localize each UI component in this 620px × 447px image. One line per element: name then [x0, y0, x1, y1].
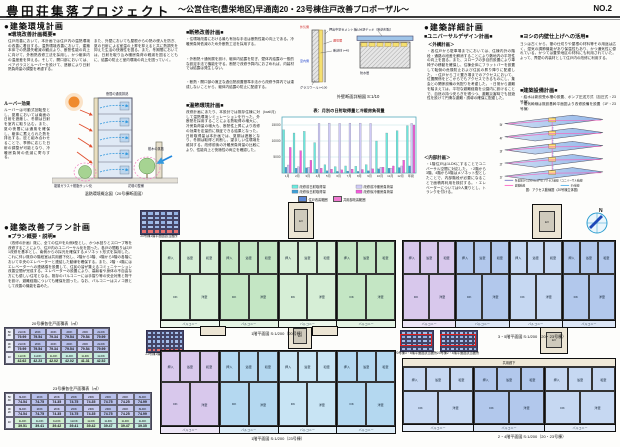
- plan-subheading: ■プラン概要・説明■: [8, 233, 56, 240]
- thermal-concept-diagram: 複層ガラス＋樹脂サッシ化 花壇の整備 樹木の蒸散 夜間の通風排熱: [52, 90, 178, 190]
- area-cell: 2DK74.35: [48, 405, 65, 417]
- plan-text: （改修の計画）既に、全ての住戸を片側Ⅱ型とし、かつ水回りとスロープ等を改修するこ…: [8, 241, 132, 319]
- bar: [324, 165, 326, 173]
- room-dk: DK: [563, 274, 589, 320]
- bar: [300, 151, 302, 173]
- bar: [331, 169, 333, 173]
- setsubi-subheading: ■建築設備計画■: [520, 87, 557, 94]
- area-cell: 2DK79.54: [30, 340, 46, 352]
- unit-main-row: DK洋室: [456, 274, 508, 320]
- unit-area: 79.34: [47, 347, 61, 351]
- area-cell: 1LDK39.41: [65, 417, 82, 429]
- unit-area: 39.41: [32, 424, 47, 428]
- area-cell: 1LDK39.42: [83, 417, 100, 429]
- room-bath: 浴室: [239, 351, 258, 382]
- room-dk: DK: [220, 382, 249, 426]
- unit-area: 74.25: [118, 400, 133, 404]
- plan-caption: 3・5階平面図 S:1/200（20・23号棟）: [452, 334, 612, 340]
- unit-area: 74.75: [66, 400, 81, 404]
- unit-area: 79.99: [94, 347, 108, 351]
- unit-area: 74.35: [84, 400, 99, 404]
- detail-label-outside: 外気側: [300, 24, 309, 29]
- area-table-23: 5F 4F3LDK74.542DK74.752DK74.352DK74.752D…: [4, 392, 152, 430]
- detail-label: 防水層: [360, 70, 369, 75]
- room-bath: 浴室: [357, 351, 376, 382]
- ev-plan-detail: EV: [540, 326, 568, 354]
- room-bath: 浴室: [298, 241, 317, 274]
- balcony: バルコニー: [456, 320, 508, 327]
- insulation-bullet: ・住環境改善における最も有効な手法は断熱性能の向上である。冷暖房負荷低減のため外…: [186, 37, 294, 57]
- area-cell: 2DK74.35: [83, 405, 100, 417]
- room-oshiire: 押入: [563, 241, 580, 274]
- room-bath: 浴室: [420, 241, 437, 274]
- unit-area: 79.54: [78, 335, 92, 339]
- detail-label: 通気層: [333, 38, 342, 43]
- balcony: バルコニー: [474, 424, 544, 431]
- axon-legend-label: 各乗場からのEVと2戸のアクセス動線（ユニバーサル動線）: [515, 178, 585, 182]
- bar: [336, 171, 338, 173]
- unit-area: 74.35: [49, 412, 64, 416]
- room-washitsu: 和室: [376, 241, 395, 274]
- unit-area: 74.75: [32, 400, 47, 404]
- balcony: バルコニー: [337, 320, 395, 327]
- ev-core: [549, 157, 556, 161]
- room-washitsu: 和室: [521, 367, 544, 391]
- unit-area: 74.54: [15, 400, 30, 404]
- gaikou-title: ＜外構計画＞: [428, 42, 454, 48]
- bar: [409, 166, 411, 173]
- room-washitsu: 和室: [376, 351, 395, 382]
- axon-legend-label: 避難動線: [515, 184, 526, 188]
- room-washitsu: 和室: [258, 351, 277, 382]
- detail-label: ルーフデッキ（断熱材貼）: [356, 27, 393, 32]
- strip-inner: 押入浴室和室DK洋室バルコニー押入浴室和室DK洋室バルコニー押入浴室和室DK洋室…: [403, 241, 615, 327]
- unit-service-row: 押入浴室和室: [456, 241, 508, 274]
- bar: [341, 170, 343, 173]
- area-cell: 1LDK42.23: [30, 352, 46, 364]
- ev-label: EV: [299, 219, 303, 223]
- balcony: バルコニー: [161, 426, 219, 433]
- area-cell: 1LDK42.52: [93, 352, 109, 364]
- room-dk: DK: [474, 391, 509, 424]
- floor-plan-unit: 押入浴室和室DK洋室バルコニー: [337, 351, 395, 433]
- unit-area: 39.41: [66, 424, 81, 428]
- insulation-layer: [319, 30, 323, 82]
- bar: [398, 168, 400, 173]
- unit-service-row: 押入浴室和室: [161, 351, 219, 382]
- unit-service-row: 押入浴室和室: [510, 241, 562, 274]
- unit-area: 74.75: [101, 412, 116, 416]
- label-tree: 樹木の蒸散: [148, 146, 165, 151]
- bar: [334, 167, 336, 173]
- bar: [413, 125, 415, 173]
- bar: [285, 167, 287, 173]
- unit-service-row: 押入浴室和室: [403, 367, 473, 391]
- bar: [372, 169, 374, 173]
- room-bath: 浴室: [180, 241, 199, 274]
- svg-text:4月: 4月: [316, 174, 321, 178]
- room-oshiire: 押入: [545, 367, 568, 391]
- unit-area: 42.02: [47, 359, 61, 363]
- access-axonometric-diagram: 5f4f3f2f1f各乗場からのEVと2戸のアクセス動線（ユニバーサル動線）避難…: [490, 110, 616, 188]
- floor-plan-unit: 押入浴室和室DK洋室バルコニー: [220, 351, 279, 433]
- room-bath: 浴室: [357, 241, 376, 274]
- svg-text:15000: 15000: [272, 123, 281, 127]
- unit-row: 押入浴室和室DK洋室バルコニー押入浴室和室DK洋室バルコニー押入浴室和室DK洋室…: [161, 241, 395, 327]
- area-cell: 2DK79.54: [77, 340, 93, 352]
- unit-area: 79.54: [62, 335, 76, 339]
- legend-item: 共用部改善範囲: [333, 196, 366, 202]
- room-yoshitsu: 洋室: [190, 274, 219, 320]
- bar: [378, 169, 380, 173]
- bar: [293, 133, 295, 173]
- room-oshiire: 押入: [220, 351, 239, 382]
- floor-label: 3f: [500, 149, 503, 153]
- bar: [403, 160, 405, 173]
- balcony: バルコニー: [279, 426, 337, 433]
- svg-text:11月: 11月: [387, 174, 393, 178]
- unit-area: 42.52: [94, 359, 108, 363]
- room-washitsu: 和室: [544, 241, 561, 274]
- key-grid-caption: 20号棟3・5階平面図該当箇所: [392, 352, 440, 356]
- legend-label: 住戸改善範囲: [309, 197, 328, 202]
- wall-section-detail: 押出中空セメント板（t15） 通気層 断熱材 t=45 グラスウール t=100…: [298, 22, 418, 104]
- floor-plan-upper-35: 押入浴室和室DK洋室バルコニー押入浴室和室DK洋室バルコニー押入浴室和室DK洋室…: [402, 240, 616, 328]
- label-night: 夜間の通風排熱: [106, 91, 129, 96]
- unit-area: 74.75: [66, 412, 81, 416]
- svg-text:(kcal/月): (kcal/月): [263, 110, 276, 114]
- detail-label-inside: 室内側: [300, 58, 309, 63]
- unit-area: 74.99: [135, 400, 150, 404]
- area-cell: 2DK79.34: [46, 328, 62, 340]
- area-cell: 1LDK39.42: [48, 417, 65, 429]
- bar: [365, 165, 367, 173]
- svg-text:5000: 5000: [273, 155, 280, 159]
- unit-area: 42.02: [62, 359, 76, 363]
- thermal-subheading: ■温熱環境計画■: [186, 102, 223, 109]
- room-dk: DK: [510, 274, 536, 320]
- unit-main-row: DK洋室: [563, 274, 615, 320]
- unit-row: 押入浴室和室DK洋室バルコニー押入浴室和室DK洋室バルコニー押入浴室和室DK洋室…: [161, 351, 395, 433]
- unit-area: 74.35: [84, 412, 99, 416]
- unit-service-row: 押入浴室和室: [279, 241, 337, 274]
- plan-caption: 1階平面図 S:1/200（23号棟）: [186, 436, 370, 442]
- svg-text:1月: 1月: [285, 174, 290, 178]
- bar: [388, 168, 390, 173]
- ground: [52, 178, 178, 183]
- svg-text:10000: 10000: [272, 139, 281, 143]
- area-cell: 2DK74.75: [65, 393, 82, 405]
- room-dk: DK: [337, 382, 366, 426]
- area-cell: 2LDK79.99: [93, 328, 109, 340]
- balcony: バルコニー: [220, 426, 278, 433]
- area-cell: 2LDK79.99: [93, 340, 109, 352]
- page-number: NO.2: [593, 4, 612, 13]
- key-grid-20-1f: [140, 210, 180, 235]
- insulation-subheading: ■断熱改善計画■: [186, 29, 223, 36]
- key-grid-caption: 20号棟1階平面図該当箇所: [128, 235, 190, 239]
- ev-core: [549, 171, 556, 175]
- area-cell: 2DK74.25: [117, 393, 134, 405]
- svg-text:5月: 5月: [326, 174, 331, 178]
- floor-plan-unit: 押入浴室和室DK洋室バルコニー: [510, 241, 563, 327]
- area-cell: 1LDK39.47: [100, 417, 117, 429]
- room-yoshitsu: 洋室: [366, 382, 395, 426]
- unit-area: 79.54: [31, 347, 45, 351]
- unit-main-row: DK洋室: [337, 274, 395, 320]
- room-oshiire: 押入: [161, 351, 180, 382]
- area-cell: 1LDK39.47: [117, 417, 134, 429]
- room-washitsu: 和室: [258, 241, 277, 274]
- bar: [411, 123, 413, 173]
- room-bath: 浴室: [180, 351, 199, 382]
- bar: [406, 126, 408, 173]
- room-washitsu: 和室: [317, 241, 336, 274]
- room-bath: 浴室: [426, 367, 449, 391]
- area-cell: 2DK74.75: [100, 405, 117, 417]
- room-dk: DK: [161, 382, 190, 426]
- unit-area: 74.99: [135, 412, 150, 416]
- room-yoshitsu: 洋室: [249, 382, 278, 426]
- table-row-label: 5F 4F: [5, 393, 14, 405]
- bar: [320, 168, 322, 173]
- room-oshiire: 押入: [161, 241, 180, 274]
- floor-plan-unit: 押入浴室和室DK洋室バルコニー: [403, 241, 456, 327]
- area-cell: 2LDK79.99: [14, 328, 30, 340]
- balcony: バルコニー: [337, 426, 395, 433]
- balcony: バルコニー: [403, 424, 473, 431]
- insulation-bullet: ・外断熱＋通気層を設け、躯体内結露を防ぎ、壁体内結露の一般的な設定手法で機能を守…: [186, 57, 294, 81]
- unit-main-row: DK洋室: [161, 274, 219, 320]
- cement-panel: [324, 30, 326, 82]
- svg-text:2月: 2月: [295, 174, 300, 178]
- bar: [306, 168, 308, 173]
- area-cell: 2DK74.35: [48, 393, 65, 405]
- ev-core: [549, 131, 556, 135]
- table-row-label: 5F 4F: [5, 328, 14, 340]
- balcony: バルコニー: [220, 320, 278, 327]
- unit-service-row: 押入浴室和室: [279, 351, 337, 382]
- unit-area: 74.35: [49, 400, 64, 404]
- room-yoshitsu: 洋室: [509, 391, 544, 424]
- room-washitsu: 和室: [592, 367, 615, 391]
- unit-area: 39.35: [135, 424, 150, 428]
- room-dk: DK: [279, 274, 308, 320]
- area-cell: 2DK79.54: [61, 340, 77, 352]
- unit-area: 79.34: [47, 335, 61, 339]
- balcony: バルコニー: [403, 320, 455, 327]
- unit-service-row: 押入浴室和室: [220, 351, 278, 382]
- area-cell: 2DK79.54: [61, 328, 77, 340]
- axon-caption: 図：アクセス動線図（20号棟立体図）: [492, 189, 614, 193]
- room-oshiire: 押入: [337, 351, 356, 382]
- area-cell: 1LDK39.35: [134, 417, 151, 429]
- svg-text:6月: 6月: [336, 174, 341, 178]
- area-cell: 3LDK74.99: [134, 405, 151, 417]
- floor-plan-upper-24: 共用廊下押入浴室和室DK洋室バルコニー押入浴室和室DK洋室バルコニー押入浴室和室…: [402, 358, 616, 432]
- page-subtitle: ～公営住宅(豊栄地区)早通南20・23号棟住戸改善プロポーザル～: [178, 4, 409, 15]
- unit-area: 79.54: [62, 347, 76, 351]
- area-cell: 2DK74.35: [83, 393, 100, 405]
- room-oshiire: 押入: [279, 351, 298, 382]
- floor-label: 4f: [500, 136, 503, 140]
- room-bath: 浴室: [527, 241, 544, 274]
- chart-legend-label: 改修後冷暖房負荷量: [364, 189, 394, 194]
- unit-area: 79.99: [94, 335, 108, 339]
- plan-caption: 1階平面図 S:1/200（20号棟）: [186, 331, 370, 337]
- room-washitsu: 和室: [200, 351, 219, 382]
- detail-heading: ●建築詳細計画: [424, 22, 484, 33]
- room-washitsu: 和室: [450, 367, 473, 391]
- floor-label: 1f: [500, 176, 503, 180]
- area-cell: 1LDK39.41: [31, 417, 48, 429]
- unit-main-row: DK洋室: [220, 382, 278, 426]
- svg-text:12月: 12月: [397, 174, 403, 178]
- balcony: バルコニー: [545, 424, 615, 431]
- floor-plan-unit: 押入浴室和室DK洋室バルコニー: [279, 241, 338, 327]
- bar: [297, 167, 299, 173]
- bar: [318, 123, 320, 173]
- room-dk: DK: [337, 274, 366, 320]
- bar: [359, 123, 361, 173]
- area-cell: 2DK74.75: [31, 393, 48, 405]
- unit-main-row: DK洋室: [337, 382, 395, 426]
- bar: [390, 168, 392, 173]
- room-oshiire: 押入: [510, 241, 527, 274]
- unit-area: 79.99: [15, 347, 29, 351]
- strip-inner: 共用廊下押入浴室和室DK洋室バルコニー押入浴室和室DK洋室バルコニー押入浴室和室…: [403, 359, 615, 431]
- ev-shaft: EV: [539, 211, 556, 232]
- legend-swatch: [333, 196, 342, 202]
- room-oshiire: 押入: [220, 241, 239, 274]
- unit-area: 39.47: [101, 424, 116, 428]
- room-dk: DK: [403, 274, 429, 320]
- room-yoshitsu: 洋室: [580, 391, 615, 424]
- unit-area: 39.42: [49, 424, 64, 428]
- bar: [386, 133, 388, 173]
- room-yoshitsu: 洋室: [429, 274, 455, 320]
- room-dk: DK: [403, 391, 438, 424]
- yoshi-text: ヨシは古くから、葦の仕切りや屋根の材料等その用途は広く、湿気の調節機能があり保温…: [520, 42, 616, 84]
- room-washitsu: 和室: [200, 241, 219, 274]
- svg-text:3月: 3月: [305, 174, 310, 178]
- unit-service-row: 押入浴室和室: [220, 241, 278, 274]
- area-cell: 1LDK42.02: [61, 352, 77, 364]
- ev-core: [549, 144, 556, 148]
- bar: [295, 168, 297, 173]
- floor-plan-unit: 押入浴室和室DK洋室バルコニー: [337, 241, 395, 327]
- unit-area: 41.31: [78, 359, 92, 363]
- bar: [326, 171, 328, 173]
- ev-tower: EV: [532, 204, 562, 239]
- area-cell: 2DK74.25: [117, 405, 134, 417]
- naibu-text: ・1階住戸は1LDKにすることでユニバーサル空間に対応した。・2階から3階、4階…: [426, 162, 486, 218]
- room-bath: 浴室: [239, 241, 258, 274]
- unit-row: 押入浴室和室DK洋室バルコニー押入浴室和室DK洋室バルコニー押入浴室和室DK洋室…: [403, 241, 615, 327]
- header: 豊田荘集落プロジェクト ～公営住宅(豊栄地区)早通南20・23号棟住戸改善プロポ…: [0, 0, 620, 18]
- bar: [314, 143, 316, 173]
- unit-area: 74.75: [32, 412, 47, 416]
- label-glass: 複層ガラス＋樹脂サッシ化: [54, 183, 93, 188]
- chart-legend-label: 改修前日射取得量: [300, 184, 327, 189]
- unit-service-row: 押入浴室和室: [337, 241, 395, 274]
- room-dk: DK: [545, 391, 580, 424]
- page-title: 豊田荘集落プロジェクト: [6, 1, 171, 20]
- room-washitsu: 和室: [317, 351, 336, 382]
- unit-main-row: DK洋室: [403, 391, 473, 424]
- ud-subheading: ■ユニバーサルデザイン計画■: [424, 33, 492, 40]
- plan-caption: 2・4階平面図 S:1/200（20・23号棟）: [452, 434, 612, 440]
- area-cell: 3LDK74.99: [134, 393, 151, 405]
- bar: [316, 169, 318, 173]
- room-oshiire: 押入: [337, 241, 356, 274]
- room-washitsu: 和室: [598, 241, 615, 274]
- unit-main-row: DK洋室: [279, 274, 337, 320]
- unit-service-row: 押入浴室和室: [474, 367, 544, 391]
- tree-icon: [139, 158, 155, 174]
- room-oshiire: 押入: [474, 367, 497, 391]
- table-row-label: 3F 2F: [5, 340, 14, 352]
- floor-plan-unit: 押入浴室和室DK洋室バルコニー: [279, 351, 338, 433]
- area-cell: 1LDK42.62: [14, 352, 30, 364]
- floor-plan-unit: 押入浴室和室DK洋室バルコニー: [220, 241, 279, 327]
- unit-area: 74.54: [15, 412, 30, 416]
- label-flower: 花壇の整備: [128, 183, 144, 188]
- bar: [357, 171, 359, 173]
- louver-title: ルーバー効果: [4, 101, 30, 107]
- unit-service-row: 押入浴室和室: [161, 241, 219, 274]
- env-text-col2: また、外壁においても屋根からの熱の侵入を防ぎ、夏の日射による室温の上昇を抑えると…: [94, 39, 178, 93]
- thermal-diagram-caption: 温熱環境概念図（20号棟断面図）: [52, 191, 178, 197]
- bar: [310, 160, 312, 173]
- env-subheading: ■環境改善計画概要■: [8, 31, 56, 38]
- unit-area: 79.54: [31, 335, 45, 339]
- floor-plan-unit: 押入浴室和室DK洋室バルコニー: [563, 241, 615, 327]
- room-bath: 浴室: [497, 367, 520, 391]
- roof-deck: [357, 36, 413, 41]
- unit-service-row: 押入浴室和室: [337, 351, 395, 382]
- floor-plan-unit: 押入浴室和室DK洋室バルコニー: [545, 367, 615, 431]
- floor-label: 2f: [500, 163, 503, 167]
- ev-core: [549, 118, 556, 122]
- room-bath: 浴室: [568, 367, 591, 391]
- sun-icon: [69, 97, 80, 108]
- area-cell: 2DK79.34: [46, 340, 62, 352]
- room-yoshitsu: 洋室: [536, 274, 562, 320]
- unit-service-row: 押入浴室和室: [545, 367, 615, 391]
- area-cell: 2DK74.75: [31, 405, 48, 417]
- unit-service-row: 押入浴室和室: [403, 241, 455, 274]
- room-yoshitsu: 洋室: [482, 274, 508, 320]
- room-yoshitsu: 洋室: [438, 391, 473, 424]
- bar: [308, 167, 310, 173]
- unit-main-row: DK洋室: [279, 382, 337, 426]
- floor-label: 5f: [500, 123, 503, 127]
- detail-label: グラスウール t=100: [300, 85, 327, 90]
- room-yoshitsu: 洋室: [307, 382, 336, 426]
- area-cell: 3LDK74.54: [14, 393, 31, 405]
- area-cell: 2DK79.54: [77, 328, 93, 340]
- area-cell: 2DK79.54: [30, 328, 46, 340]
- bar: [287, 165, 289, 173]
- louver-text: ルーバーは可動式回転型とし、夏期においては南面の日射を遮蔽し、冬期は日射を室内に…: [4, 108, 50, 192]
- room-yoshitsu: 洋室: [249, 274, 278, 320]
- unit-area: 39.47: [118, 424, 133, 428]
- table-row-label: 1F: [5, 417, 14, 429]
- detail-label: 断熱材 t=45: [333, 48, 350, 53]
- svg-text:年間: 年間: [408, 173, 414, 178]
- insulation-bullet: ・断熱・開口部の適正な過伝熱設置基準手法から改修予算内では達成しないことから、躯…: [186, 80, 294, 100]
